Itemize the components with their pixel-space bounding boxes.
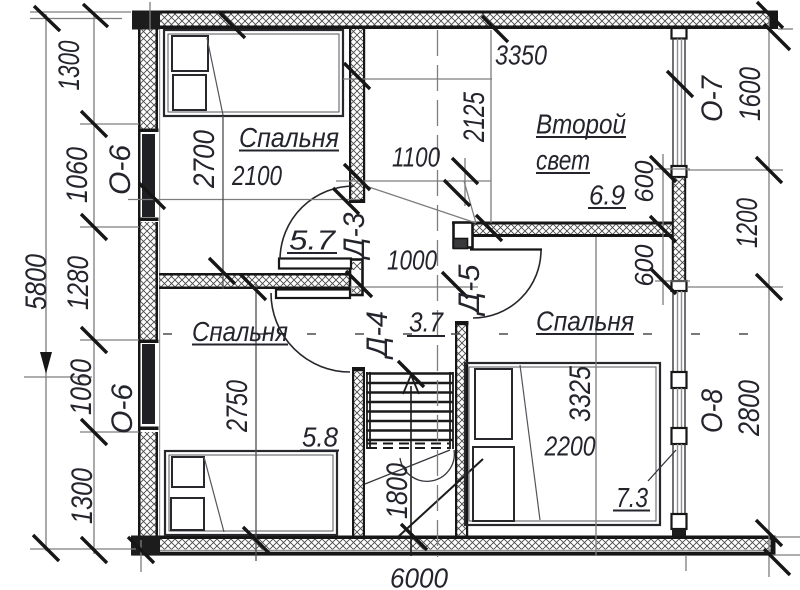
svg-text:Д-3: Д-3: [338, 212, 371, 260]
svg-text:1200: 1200: [731, 198, 764, 248]
svg-text:2200: 2200: [544, 431, 596, 462]
svg-text:1800: 1800: [381, 463, 414, 519]
svg-text:1100: 1100: [392, 142, 440, 173]
svg-text:2750: 2750: [221, 380, 254, 433]
svg-text:5.7: 5.7: [289, 225, 337, 256]
svg-text:Спальня: Спальня: [536, 306, 634, 337]
svg-text:Д-4: Д-4: [361, 311, 394, 360]
svg-text:О-6: О-6: [106, 384, 139, 434]
svg-text:О-8: О-8: [696, 389, 729, 433]
svg-text:5.8: 5.8: [302, 422, 338, 453]
svg-text:3.7: 3.7: [409, 307, 444, 338]
svg-text:О-6: О-6: [104, 145, 137, 195]
svg-text:2800: 2800: [733, 380, 766, 437]
svg-text:3325: 3325: [564, 366, 597, 422]
svg-text:6.9: 6.9: [589, 180, 625, 211]
svg-text:1000: 1000: [387, 245, 437, 276]
svg-text:Второй: Второй: [536, 109, 626, 140]
svg-text:1280: 1280: [62, 256, 95, 310]
svg-text:2125: 2125: [458, 92, 491, 143]
svg-text:5800: 5800: [20, 254, 53, 310]
svg-text:1300: 1300: [66, 468, 99, 524]
svg-text:1300: 1300: [53, 40, 86, 90]
svg-text:7.3: 7.3: [616, 482, 648, 513]
svg-text:свет: свет: [536, 145, 590, 176]
svg-text:6000: 6000: [390, 563, 448, 590]
svg-text:2700: 2700: [188, 130, 221, 189]
svg-text:3350: 3350: [495, 40, 547, 71]
svg-text:600: 600: [629, 160, 659, 203]
svg-text:2100: 2100: [231, 160, 282, 191]
svg-text:О-7: О-7: [696, 75, 729, 122]
svg-text:Спальня: Спальня: [192, 316, 288, 347]
svg-text:Д-5: Д-5: [453, 264, 486, 316]
svg-text:1060: 1060: [61, 147, 94, 203]
svg-text:600: 600: [629, 244, 659, 287]
svg-text:Спальня: Спальня: [239, 122, 339, 153]
svg-text:1060: 1060: [65, 359, 98, 415]
svg-text:1600: 1600: [734, 67, 767, 121]
